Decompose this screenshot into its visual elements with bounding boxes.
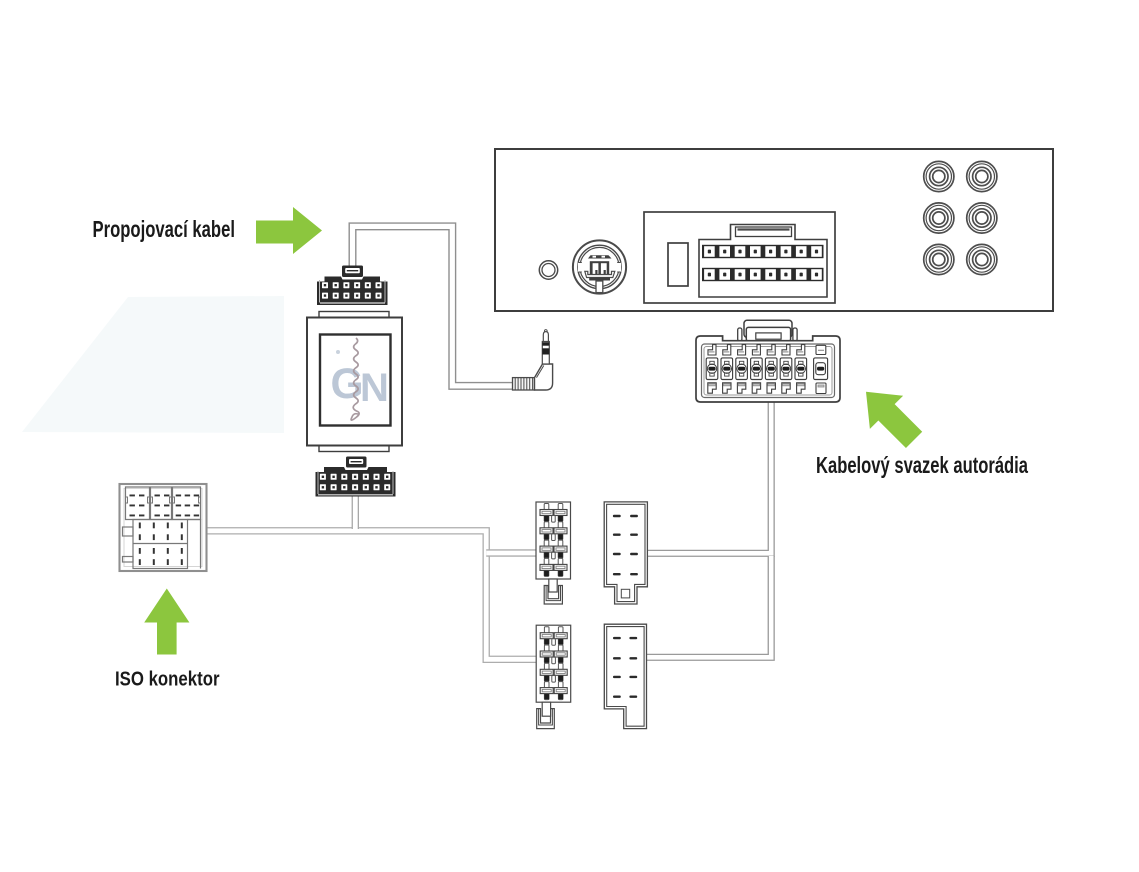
svg-text:ISO konektor: ISO konektor <box>115 668 220 690</box>
svg-text:Kabelový svazek autorádia: Kabelový svazek autorádia <box>816 452 1029 478</box>
svg-text:Propojovací kabel: Propojovací kabel <box>93 216 236 242</box>
svg-text:N: N <box>360 366 389 410</box>
